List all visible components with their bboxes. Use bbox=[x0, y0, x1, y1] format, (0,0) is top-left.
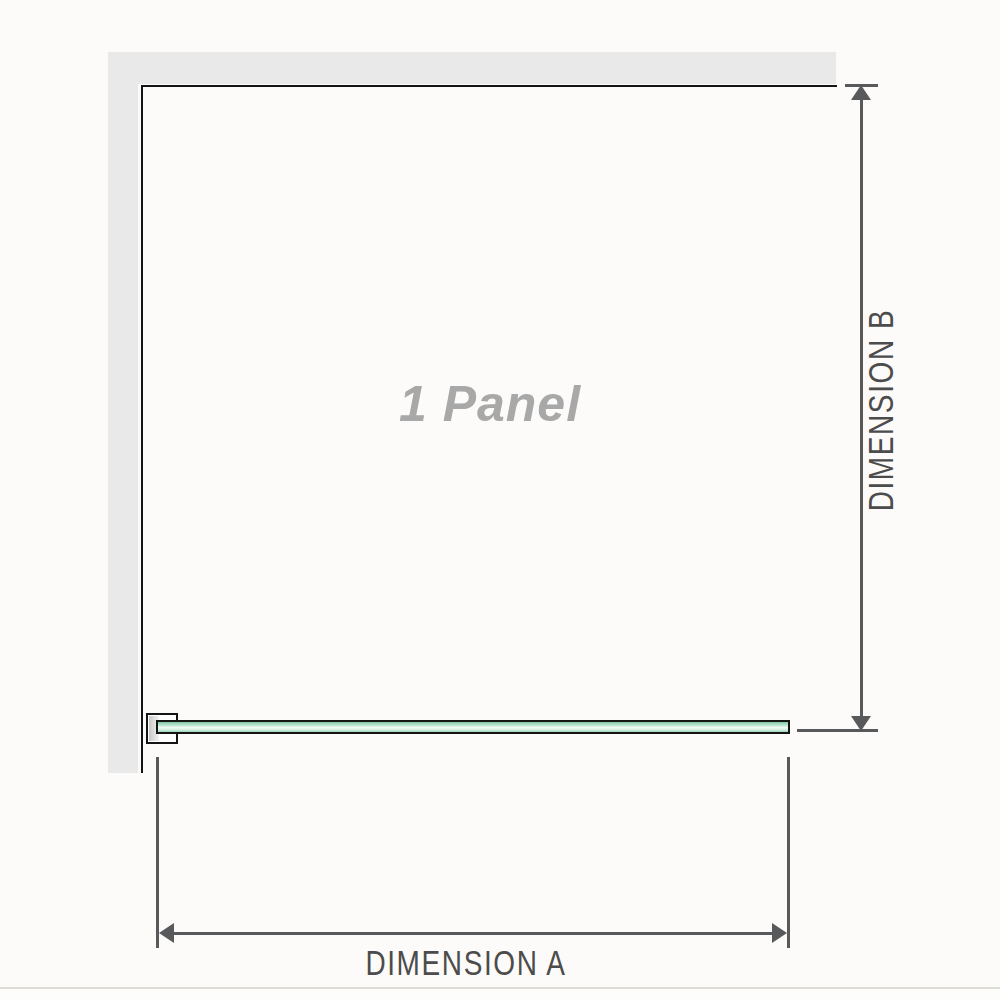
dimension-a-extension-line-right bbox=[787, 757, 790, 948]
dimension-a-label: DIMENSION A bbox=[365, 943, 566, 983]
wall-top bbox=[108, 52, 836, 84]
wall-left bbox=[108, 52, 138, 773]
panel-label: 1 Panel bbox=[399, 375, 581, 433]
arrow-down-icon bbox=[851, 716, 871, 731]
shower-panel-diagram: 1 Panel DIMENSION B DIMENSION A bbox=[0, 0, 1000, 1000]
arrow-up-icon bbox=[851, 85, 871, 100]
dimension-a-line bbox=[170, 932, 776, 935]
glass-panel-bar bbox=[156, 720, 790, 734]
bottom-strip bbox=[0, 989, 1000, 1000]
dimension-a-extension-line-left bbox=[156, 757, 159, 948]
dimension-b-label: DIMENSION B bbox=[861, 309, 901, 512]
arrow-left-icon bbox=[159, 923, 174, 943]
arrow-right-icon bbox=[772, 923, 787, 943]
panel-area: 1 Panel bbox=[143, 87, 837, 721]
